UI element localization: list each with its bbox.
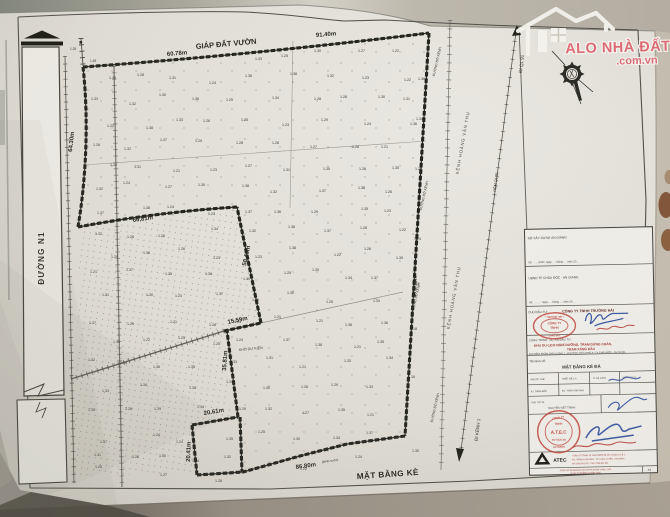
svg-text:1.32: 1.32: [224, 455, 231, 459]
svg-text:THIẾT KẾ 1-4: THIẾT KẾ 1-4: [562, 377, 578, 380]
svg-text:1.24: 1.24: [209, 81, 216, 85]
svg-text:1.28: 1.28: [340, 95, 347, 99]
svg-text:1.37: 1.37: [283, 338, 290, 342]
svg-text:1.21: 1.21: [90, 270, 97, 274]
svg-text:1.36: 1.36: [205, 272, 212, 276]
svg-text:1.36: 1.36: [381, 321, 388, 325]
svg-text:1.30: 1.30: [412, 449, 419, 453]
svg-text:1.38: 1.38: [315, 343, 322, 347]
svg-text:1.27: 1.27: [358, 49, 365, 53]
svg-text:1.27: 1.27: [302, 411, 309, 415]
svg-text:1.26: 1.26: [359, 167, 366, 171]
svg-text:1.25: 1.25: [226, 98, 233, 102]
svg-text:1.32: 1.32: [129, 102, 136, 106]
svg-text:1.38: 1.38: [345, 323, 352, 327]
svg-text:1.30: 1.30: [159, 93, 166, 97]
svg-text:1.24: 1.24: [236, 338, 243, 342]
svg-text:1.30: 1.30: [146, 293, 153, 297]
svg-text:1.23: 1.23: [255, 255, 262, 259]
svg-text:1.21: 1.21: [170, 320, 177, 324]
svg-text:1.29: 1.29: [331, 383, 338, 387]
svg-text:1.37: 1.37: [371, 276, 378, 280]
svg-text:1.21: 1.21: [173, 169, 180, 173]
svg-text:1.36: 1.36: [245, 74, 252, 78]
svg-text:1.25: 1.25: [281, 54, 288, 58]
svg-text:1.22: 1.22: [392, 49, 399, 53]
svg-text:1.31: 1.31: [134, 165, 141, 169]
svg-text:1.33: 1.33: [344, 359, 351, 363]
svg-text:1.35: 1.35: [165, 272, 172, 276]
svg-text:TỶ LỆ 1/500: TỶ LỆ 1/500: [593, 377, 607, 380]
svg-text:1.24: 1.24: [176, 440, 183, 444]
svg-text:1.36: 1.36: [410, 122, 417, 126]
svg-text:1.30: 1.30: [378, 95, 385, 99]
svg-text:1.29: 1.29: [111, 255, 118, 259]
svg-text:1.35: 1.35: [338, 408, 345, 412]
svg-text:1.28: 1.28: [215, 479, 222, 483]
svg-text:1.23: 1.23: [213, 256, 220, 260]
svg-text:1.24: 1.24: [167, 205, 174, 209]
svg-text:1.21: 1.21: [381, 145, 388, 149]
svg-text:1.38: 1.38: [242, 184, 249, 188]
svg-text:1.33: 1.33: [373, 299, 380, 303]
svg-text:1.32: 1.32: [110, 163, 117, 167]
svg-text:1.29: 1.29: [195, 139, 202, 143]
svg-text:1.37: 1.37: [160, 138, 167, 142]
svg-text:1.30: 1.30: [314, 49, 321, 53]
svg-text:1.38: 1.38: [289, 246, 296, 250]
svg-text:1.37: 1.37: [126, 268, 133, 272]
svg-text:1.26: 1.26: [203, 119, 210, 123]
svg-text:20.41m: 20.41m: [186, 442, 193, 463]
svg-text:1.37: 1.37: [216, 292, 223, 296]
svg-text:1.35: 1.35: [188, 365, 195, 369]
svg-text:1.32: 1.32: [270, 190, 277, 194]
svg-text:1.33: 1.33: [255, 57, 262, 61]
svg-text:1.26: 1.26: [385, 190, 392, 194]
svg-text:1.28: 1.28: [272, 141, 279, 145]
svg-text:1.27: 1.27: [310, 145, 317, 149]
svg-text:TNHH: TNHH: [550, 326, 558, 330]
svg-text:1.36: 1.36: [192, 97, 199, 101]
svg-text:1.30: 1.30: [198, 183, 205, 187]
svg-text:1.23: 1.23: [362, 76, 369, 80]
svg-text:1.28: 1.28: [209, 323, 216, 327]
svg-text:1.31: 1.31: [403, 97, 410, 101]
svg-text:TNHH: TNHH: [555, 422, 563, 426]
svg-text:1.38: 1.38: [288, 225, 295, 229]
svg-text:A.T.E.C: A.T.E.C: [551, 430, 568, 435]
svg-text:AN GIANG: AN GIANG: [553, 446, 565, 449]
svg-text:1.28: 1.28: [352, 145, 359, 149]
svg-text:1.22: 1.22: [404, 78, 411, 82]
svg-text:1.33: 1.33: [366, 385, 373, 389]
svg-text:1.31: 1.31: [266, 356, 273, 360]
svg-text:1.23: 1.23: [175, 294, 182, 298]
svg-text:1.24: 1.24: [364, 122, 371, 126]
svg-text:1.21: 1.21: [354, 345, 361, 349]
svg-text:1.22: 1.22: [143, 338, 150, 342]
svg-text:1.35: 1.35: [226, 437, 233, 441]
svg-text:1.27: 1.27: [165, 185, 172, 189]
svg-text:1.37: 1.37: [366, 431, 373, 435]
svg-text:1.27: 1.27: [245, 164, 252, 168]
svg-text:1.38: 1.38: [146, 126, 153, 130]
svg-text:1.34: 1.34: [386, 356, 393, 360]
svg-text:1.27: 1.27: [160, 473, 167, 477]
svg-text:1.34: 1.34: [272, 96, 279, 100]
svg-text:1.26: 1.26: [364, 247, 371, 251]
svg-text:1.30: 1.30: [263, 386, 270, 390]
svg-text:1.48: 1.48: [90, 59, 96, 63]
svg-text:1.35: 1.35: [377, 340, 384, 344]
svg-text:A4: A4: [648, 468, 652, 472]
svg-text:1.30: 1.30: [396, 256, 403, 260]
svg-text:1.21: 1.21: [367, 413, 374, 417]
svg-text:1.23: 1.23: [210, 168, 217, 172]
svg-text:1.29: 1.29: [239, 407, 246, 411]
svg-text:1.29: 1.29: [321, 118, 328, 122]
svg-text:1.34: 1.34: [211, 227, 218, 231]
svg-text:1.21: 1.21: [299, 365, 306, 369]
svg-text:1.22: 1.22: [107, 124, 114, 128]
svg-text:1.30: 1.30: [293, 437, 300, 441]
svg-text:1.32: 1.32: [327, 74, 334, 78]
svg-text:1.29: 1.29: [311, 210, 318, 214]
svg-text:CHỦ TRÌ TK: CHỦ TRÌ TK: [531, 401, 545, 404]
svg-text:1.22: 1.22: [399, 228, 406, 232]
svg-text:1.38: 1.38: [358, 186, 365, 190]
svg-text:1.30: 1.30: [243, 277, 250, 281]
svg-text:1.28: 1.28: [314, 97, 321, 101]
svg-text:1.26: 1.26: [158, 234, 165, 238]
svg-text:1.33: 1.33: [91, 97, 98, 101]
svg-text:1.34: 1.34: [333, 436, 340, 440]
svg-text:1.28: 1.28: [127, 235, 134, 239]
svg-text:1.36: 1.36: [274, 210, 281, 214]
svg-text:1.32: 1.32: [249, 229, 256, 233]
svg-text:1.30: 1.30: [287, 291, 294, 295]
svg-text:1.21: 1.21: [274, 315, 281, 319]
svg-text:1.36: 1.36: [143, 251, 150, 255]
svg-text:1.35: 1.35: [109, 76, 116, 80]
svg-text:1.36: 1.36: [153, 365, 160, 369]
svg-text:KT. GIÁM ĐỐC: KT. GIÁM ĐỐC: [531, 390, 548, 393]
svg-text:1.23: 1.23: [384, 209, 391, 213]
svg-text:1.21: 1.21: [316, 319, 323, 323]
svg-text:1.28: 1.28: [137, 73, 144, 77]
svg-text:1.25: 1.25: [178, 336, 185, 340]
svg-text:1.35: 1.35: [361, 207, 368, 211]
svg-text:1.23: 1.23: [208, 212, 215, 216]
svg-text:1.28: 1.28: [360, 226, 367, 230]
svg-text:1.37: 1.37: [97, 211, 104, 215]
svg-text:1.26: 1.26: [301, 385, 308, 389]
svg-text:1.37: 1.37: [89, 321, 96, 325]
svg-text:1.25: 1.25: [127, 322, 134, 326]
svg-text:1.25: 1.25: [312, 268, 319, 272]
svg-text:1.28: 1.28: [236, 141, 243, 145]
svg-text:CHÂU ĐỐC: CHÂU ĐỐC: [549, 334, 561, 337]
svg-text:1.30: 1.30: [159, 454, 166, 458]
svg-text:ATEC: ATEC: [553, 458, 567, 464]
svg-text:1.34: 1.34: [416, 117, 423, 121]
svg-text:1.35: 1.35: [392, 166, 399, 170]
svg-text:NGƯỜI T.KẾ: NGƯỜI T.KẾ: [531, 378, 545, 381]
svg-text:1.38: 1.38: [143, 206, 150, 210]
svg-text:1.28: 1.28: [70, 47, 76, 51]
svg-text:CÔNG TY: CÔNG TY: [548, 320, 562, 325]
svg-text:1.32: 1.32: [124, 147, 131, 151]
svg-text:1.35: 1.35: [323, 167, 330, 171]
svg-text:* TRƯỜNG HẢI *: * TRƯỜNG HẢI *: [545, 316, 564, 319]
svg-text:1.32: 1.32: [265, 407, 272, 411]
svg-text:1.25: 1.25: [326, 300, 333, 304]
svg-text:1.37: 1.37: [319, 189, 326, 193]
svg-text:1.36: 1.36: [418, 77, 425, 81]
svg-text:1.24: 1.24: [355, 455, 362, 459]
svg-text:1.32: 1.32: [95, 232, 102, 236]
svg-text:1.31: 1.31: [169, 76, 176, 80]
svg-text:1.32: 1.32: [96, 187, 103, 191]
svg-text:MẶT BẰNG KÈ ĐÁ: MẶT BẰNG KÈ ĐÁ: [562, 364, 601, 370]
svg-text:1.33: 1.33: [176, 118, 183, 122]
svg-text:1.31: 1.31: [102, 293, 109, 297]
svg-text:1.22: 1.22: [334, 253, 341, 257]
svg-text:.com.vn: .com.vn: [616, 54, 658, 67]
svg-text:1.37: 1.37: [324, 229, 331, 233]
svg-text:1.37: 1.37: [245, 210, 252, 214]
svg-text:1.31: 1.31: [283, 168, 290, 172]
svg-text:1.25: 1.25: [258, 430, 265, 434]
svg-text:1.26: 1.26: [93, 143, 100, 147]
svg-text:1.24: 1.24: [123, 181, 130, 185]
svg-text:SỞ XÂY DỰNG AN GIANG: SỞ XÂY DỰNG AN GIANG: [528, 234, 568, 240]
svg-text:1.23: 1.23: [282, 123, 289, 127]
svg-text:1.38: 1.38: [290, 72, 297, 76]
svg-text:1.25: 1.25: [241, 118, 248, 122]
svg-text:1.38: 1.38: [189, 386, 196, 390]
svg-text:1.25: 1.25: [284, 271, 291, 275]
svg-text:KS. TRẦN VĂN PHÚ: KS. TRẦN VĂN PHÚ: [562, 389, 585, 392]
svg-text:1.25: 1.25: [213, 342, 220, 346]
svg-text:1.34: 1.34: [345, 276, 352, 280]
svg-text:1.26: 1.26: [178, 247, 185, 251]
